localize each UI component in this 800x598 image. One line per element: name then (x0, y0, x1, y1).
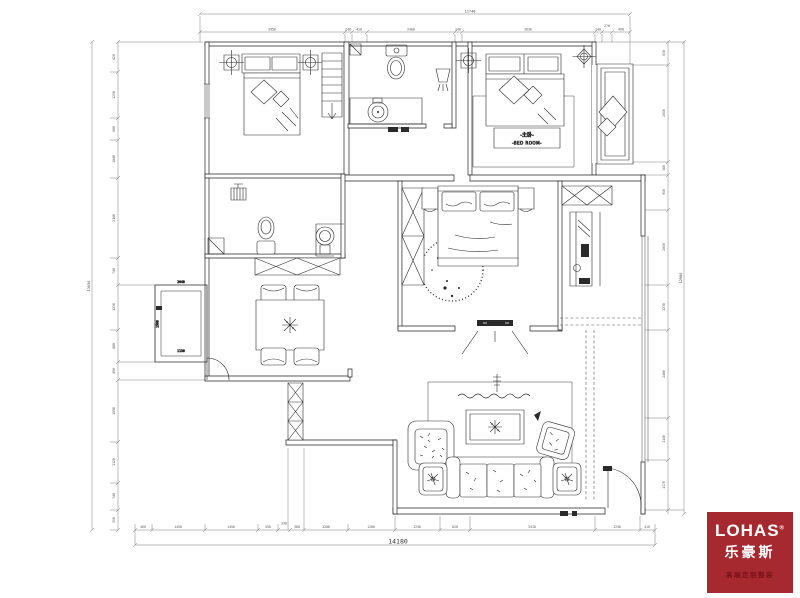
dim-label: 2650 (662, 109, 666, 117)
dim-label: 630 (662, 50, 666, 56)
dim-label: 740 (112, 268, 116, 274)
dim-label: 1250 (112, 91, 116, 99)
ceiling-light-icon (298, 50, 323, 75)
dining-area (207, 285, 324, 380)
dim-label: 1130 (177, 349, 185, 353)
shower-head-icon (231, 184, 246, 200)
shelf-ladder-icon (322, 53, 342, 119)
dim-label: 3630 (524, 28, 532, 32)
side-table-plant-icon (419, 463, 447, 495)
dim-label: 1230 (413, 525, 421, 529)
vanity-sink-icon (350, 98, 422, 124)
dim-label: 240 (595, 28, 601, 32)
console-decor-icon (458, 374, 530, 398)
dim-label: 1690 (112, 407, 116, 415)
dim-label: 820 (112, 54, 116, 60)
dim-label: 600 (112, 126, 116, 132)
floorplan-canvas: 11740 14180 13050 12980 3950 240 410 240… (0, 0, 800, 598)
dim-right-total: 12980 (679, 273, 683, 284)
bay-cushion-icon (598, 96, 627, 136)
dim-label: 1450 (227, 525, 235, 529)
dim-label: 330 (281, 522, 287, 526)
nightstand-icon (518, 188, 534, 212)
dim-label: 380 (294, 525, 300, 529)
dining-chair-icon (261, 348, 286, 365)
dim-label: 1450 (174, 525, 182, 529)
registered-mark-icon: ® (780, 525, 785, 531)
bed-icon (438, 186, 518, 266)
dim-label: 1040 (112, 155, 116, 163)
bed-icon (486, 74, 564, 126)
floor-drain-icon (208, 238, 224, 254)
dim-label: 270 (604, 24, 610, 28)
toilet-icon (257, 217, 275, 254)
dim-label: 2400 (662, 370, 666, 378)
arrow-marker (534, 411, 541, 421)
dim-label: 1500 (156, 320, 160, 328)
dim-label: 2040 (177, 280, 185, 284)
dim-label: 360 (662, 165, 666, 171)
bed-icon (244, 73, 300, 135)
brand-chinese-name: 乐豪斯 (707, 542, 793, 562)
dim-label: 950 (662, 189, 666, 195)
brand-logo: LOHAS® 乐豪斯 高端定制整装 (707, 512, 793, 593)
dim-label: 550 (112, 517, 116, 523)
dim-label: 1230 (112, 303, 116, 311)
master-label-en: -BED ROOM- (512, 141, 542, 146)
sliding-door-marker (462, 320, 528, 354)
dim-label: 3410 (528, 525, 536, 529)
dim-label: 240 (345, 28, 351, 32)
dim-label: 1120 (112, 458, 116, 466)
coffee-table-icon (466, 410, 524, 444)
dining-chair-icon (294, 285, 319, 302)
dim-label: 410 (356, 28, 362, 32)
dim-label: 240 (455, 28, 461, 32)
ceiling-light-icon (456, 48, 481, 73)
dining-table-icon (256, 300, 324, 350)
bay-window (592, 64, 633, 164)
dim-label: 410 (644, 525, 650, 529)
closet-icon (255, 258, 340, 275)
brand-tagline: 高端定制整装 (707, 569, 793, 579)
dim-label: 740 (112, 493, 116, 499)
dim-label: 550 (265, 525, 271, 529)
master-bedroom: -主卧- -BED ROOM- (456, 45, 596, 167)
toilet-icon (386, 45, 407, 79)
dim-label: 1370 (662, 481, 666, 489)
living-room (408, 318, 641, 516)
room-label: -主卧- -BED ROOM- (494, 128, 560, 148)
wardrobe-icon (402, 188, 424, 285)
dim-label: 490 (112, 368, 116, 374)
dim-label: 1200 (322, 525, 330, 529)
dim-label: 460 (140, 525, 146, 529)
dining-chair-icon (294, 348, 319, 365)
dim-label: 820 (452, 525, 458, 529)
dim-label: 2050 (662, 243, 666, 251)
dim-left-total: 13050 (87, 281, 91, 292)
dim-label: 880 (112, 343, 116, 349)
pedestal-sink-icon (316, 224, 344, 256)
dim-bottom-total: 14180 (388, 538, 408, 546)
sofa-icon (446, 457, 554, 498)
dim-label: 3950 (268, 28, 276, 32)
bathroom-top (350, 44, 450, 132)
bedroom-secondary (219, 50, 342, 135)
ceiling-light-icon (219, 50, 244, 75)
bathroom-left (208, 184, 344, 275)
balcony: 2040 1500 1130 (155, 280, 207, 362)
dim-label: 2400 (407, 28, 415, 32)
structural-columns (288, 383, 303, 440)
accent-chair-icon (535, 420, 576, 461)
dim-label: 2180 (112, 214, 116, 222)
dim-label: 1140 (662, 435, 666, 443)
side-table-plant-icon (553, 463, 581, 495)
shower-icon (436, 69, 450, 91)
dining-chair-icon (261, 285, 286, 302)
master-label-cn: -主卧- (520, 132, 534, 139)
dim-label: 490 (618, 28, 624, 32)
desk-cabinet-icon (570, 212, 600, 286)
dim-label: 1230 (662, 303, 666, 311)
floorplan-drawing: 11740 14180 13050 12980 3950 240 410 240… (0, 0, 800, 598)
dim-label: 1280 (367, 525, 375, 529)
brand-wordmark: LOHAS® (707, 521, 793, 541)
dim-label: 1230 (613, 525, 621, 529)
closet-icon (562, 186, 612, 205)
nightstand-icon (422, 188, 438, 212)
dim-top-total: 11740 (465, 10, 476, 14)
